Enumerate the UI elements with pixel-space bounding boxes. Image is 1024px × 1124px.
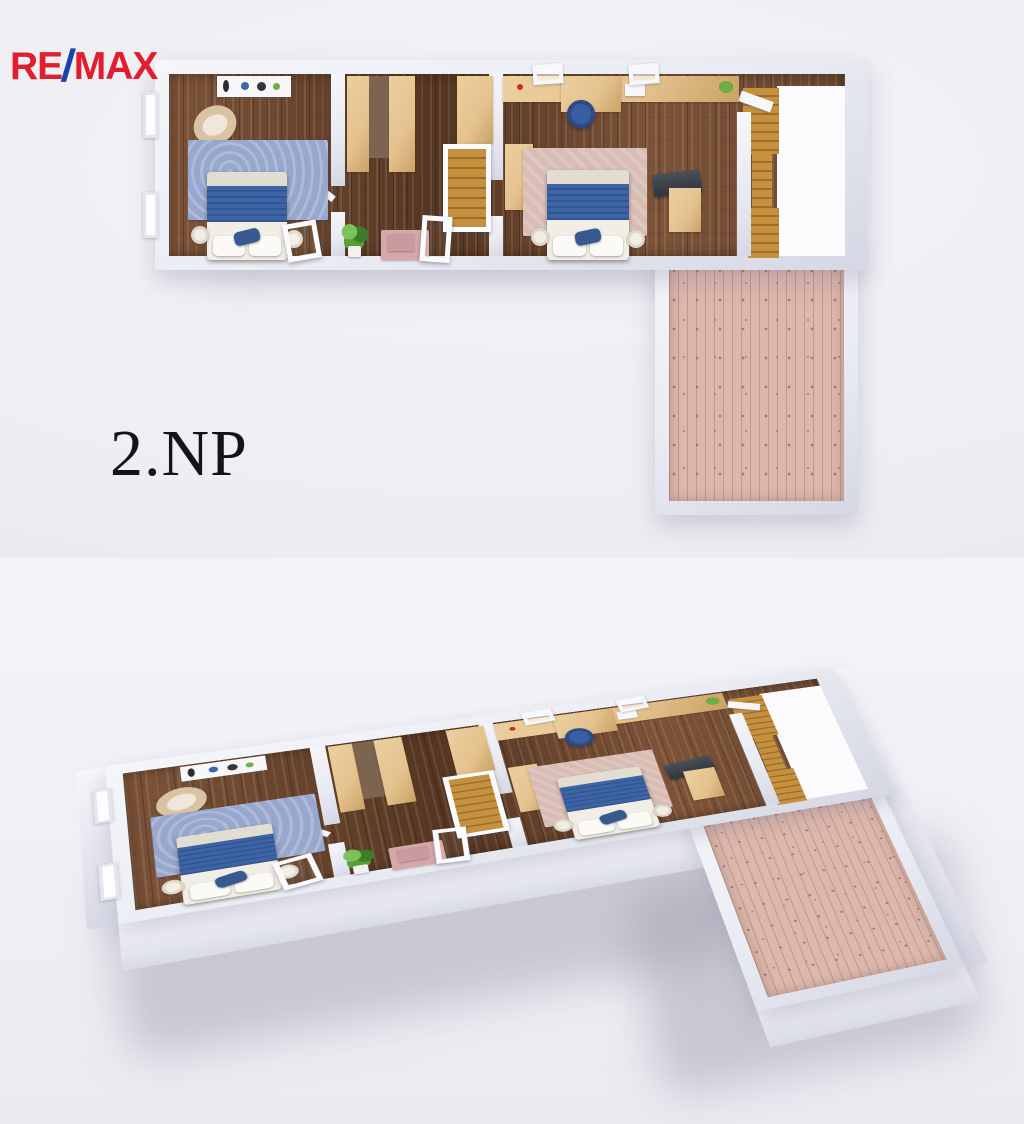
plant-pot <box>353 864 370 875</box>
main-staircase-treads <box>448 774 503 834</box>
wall-stairwell <box>737 112 751 256</box>
hall-side-table <box>388 234 414 251</box>
skylight-2 <box>628 63 659 85</box>
hall-leaning-frame <box>419 215 452 263</box>
remax-logo: RE/MAX <box>10 38 157 90</box>
decor-plant-small <box>245 762 254 768</box>
decor-bowl-blue <box>241 82 249 90</box>
leaning-mirror <box>282 219 322 262</box>
desk-chair <box>567 100 595 128</box>
hall-leaning-frame <box>432 826 470 864</box>
window-left-lower <box>98 862 120 901</box>
desk-notepad <box>625 84 645 96</box>
skylight-1 <box>532 63 563 85</box>
stair-winder <box>752 154 772 208</box>
floor-plan <box>155 60 868 515</box>
floor-plan-render: RE/MAX 2.NP <box>0 0 1024 1124</box>
tv-cabinet <box>669 188 701 232</box>
window-left-upper <box>143 92 158 138</box>
wardrobe-column-3 <box>457 76 493 144</box>
bedroom2-bed <box>547 170 629 260</box>
decor-bowl-blue <box>208 766 218 773</box>
plant-pot <box>348 246 361 257</box>
main-staircase-treads <box>448 149 486 227</box>
floor-level-label: 2.NP <box>110 416 248 492</box>
decor-bowl-dark <box>227 763 238 771</box>
bed-blanket <box>547 184 629 220</box>
decor-bowl-dark <box>257 82 266 91</box>
wardrobe-recess <box>369 76 389 158</box>
bed-blanket <box>207 186 287 222</box>
desk-decor-red <box>509 726 516 731</box>
desk-decor-red <box>517 84 523 90</box>
bed-headrail <box>547 170 629 184</box>
bed-headrail <box>207 172 287 186</box>
stair-lower-flight <box>748 208 779 258</box>
potted-plant <box>339 222 371 258</box>
desk-plant <box>719 81 733 93</box>
bedroom1-bed <box>207 172 287 260</box>
hall-side-table <box>397 845 429 862</box>
decor-candle <box>223 80 229 92</box>
stairwell-void <box>777 86 845 256</box>
window-left-upper <box>92 788 113 824</box>
bed-bolster-right <box>627 230 645 248</box>
desk-plant <box>705 697 721 706</box>
terrace-floor <box>669 264 844 501</box>
window-left-lower <box>143 192 158 238</box>
wall-bedroom2-lower <box>489 216 503 256</box>
wall-bedroom1-upper <box>331 74 345 186</box>
wardrobe-column-2 <box>389 76 415 172</box>
remax-logo-re: RE <box>10 45 62 88</box>
bedroom1-dresser <box>217 76 291 97</box>
decor-candle <box>187 768 195 777</box>
wardrobe-column-1 <box>347 76 369 172</box>
bed-bolster-left <box>191 226 209 244</box>
remax-logo-max: MAX <box>74 45 158 88</box>
decor-plant-small <box>273 83 280 90</box>
bed-bolster-left <box>531 228 549 246</box>
